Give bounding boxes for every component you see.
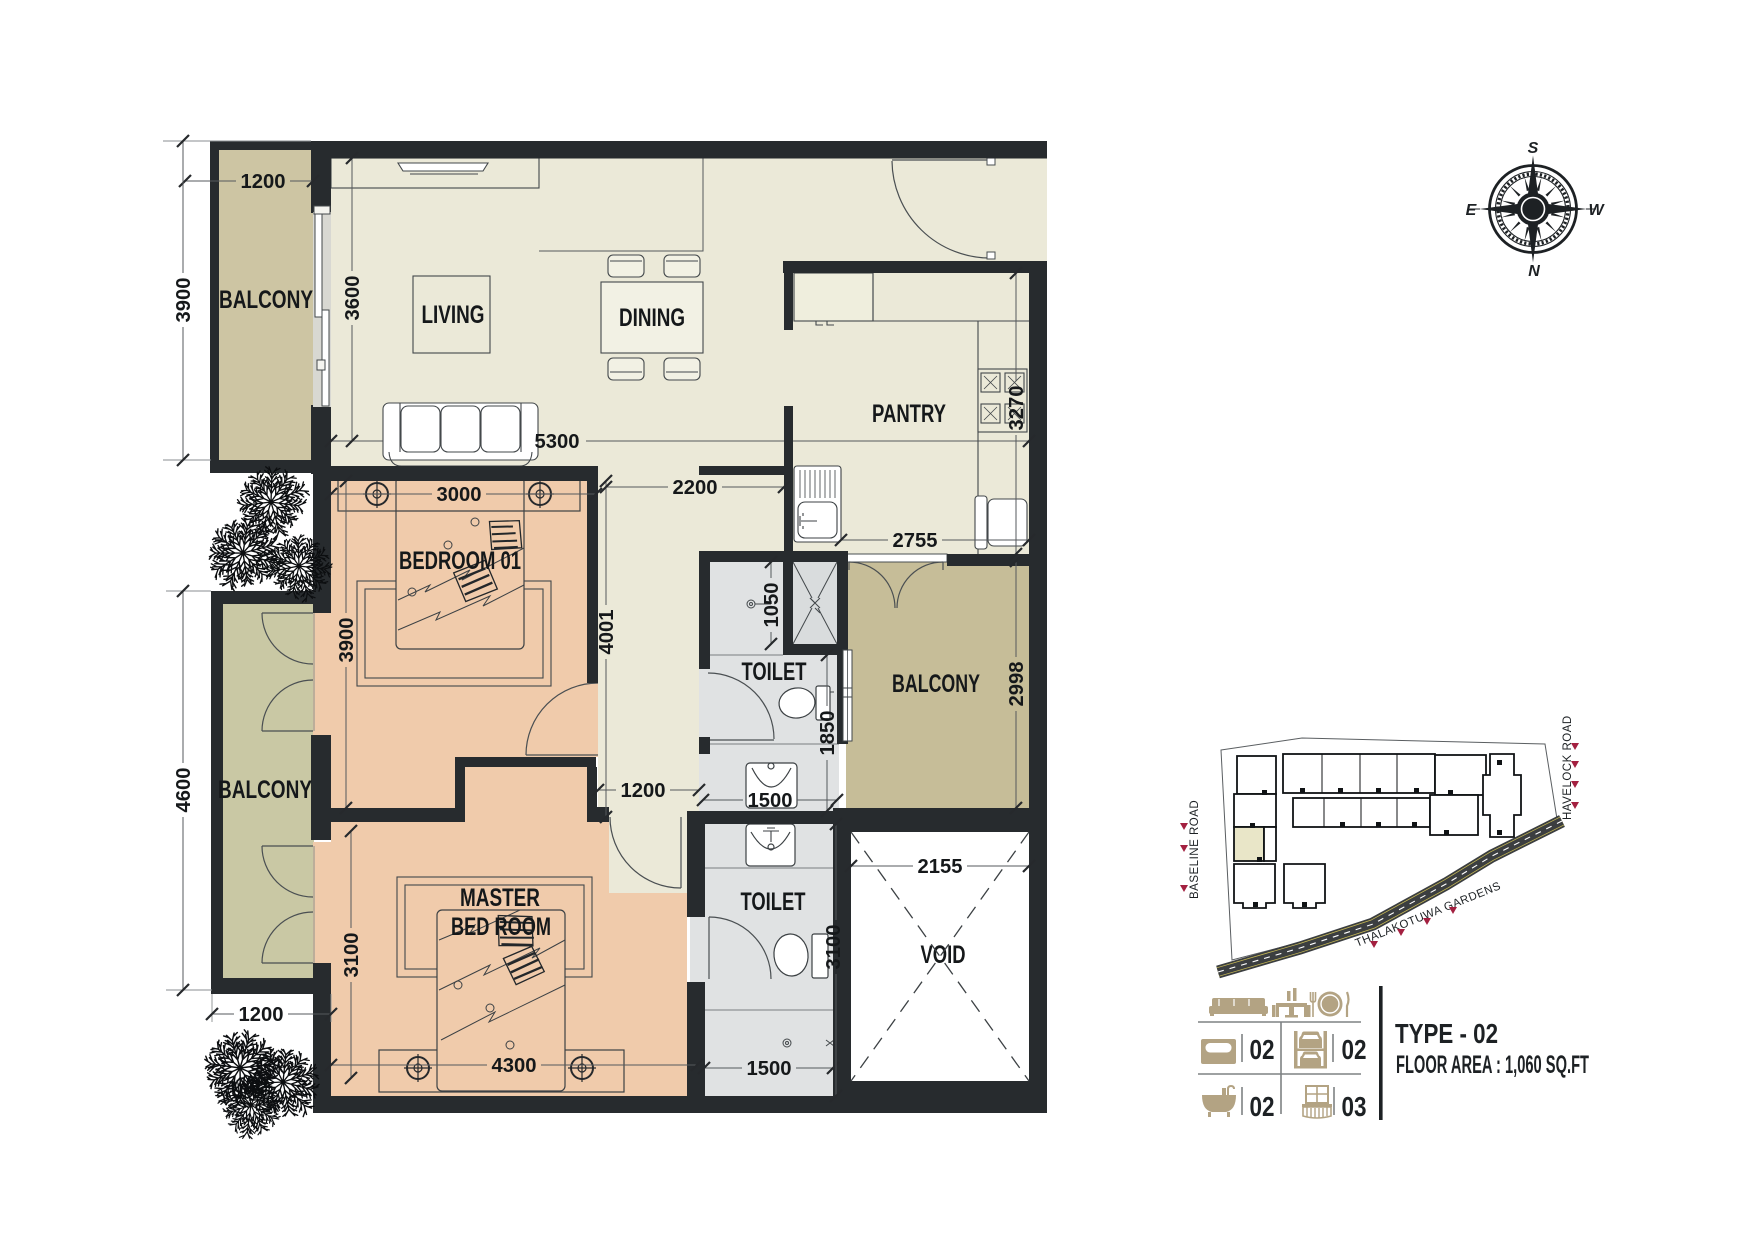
svg-text:MASTER: MASTER [460, 884, 540, 912]
svg-text:2755: 2755 [893, 530, 938, 552]
svg-text:4001: 4001 [596, 610, 618, 655]
svg-text:TYPE - 02: TYPE - 02 [1395, 1018, 1498, 1049]
svg-text:3600: 3600 [342, 276, 364, 321]
svg-text:BALCONY: BALCONY [218, 776, 312, 804]
svg-text:3900: 3900 [336, 618, 358, 663]
svg-text:E: E [1466, 202, 1478, 219]
svg-text:1850: 1850 [817, 711, 839, 756]
svg-text:N: N [1528, 263, 1540, 280]
svg-text:W: W [1588, 202, 1605, 219]
svg-text:3900: 3900 [173, 278, 195, 323]
svg-text:VOID: VOID [921, 941, 966, 969]
svg-text:BEDROOM 01: BEDROOM 01 [399, 547, 521, 575]
svg-text:LIVING: LIVING [422, 301, 485, 329]
svg-text:02: 02 [1250, 1091, 1275, 1122]
svg-text:4600: 4600 [173, 768, 195, 813]
svg-text:3100: 3100 [341, 933, 363, 978]
svg-text:1200: 1200 [239, 1004, 284, 1026]
svg-text:02: 02 [1250, 1034, 1275, 1065]
svg-text:2155: 2155 [918, 856, 963, 878]
svg-text:TOILET: TOILET [742, 658, 807, 686]
svg-text:2200: 2200 [673, 477, 718, 499]
svg-text:BASELINE ROAD: BASELINE ROAD [1189, 800, 1201, 899]
svg-text:1200: 1200 [621, 780, 666, 802]
svg-text:1200: 1200 [241, 171, 286, 193]
svg-text:1500: 1500 [748, 790, 793, 812]
svg-text:FLOOR AREA : 1,060 SQ.FT: FLOOR AREA : 1,060 SQ.FT [1396, 1051, 1589, 1079]
svg-text:1500: 1500 [747, 1058, 792, 1080]
svg-text:S: S [1528, 140, 1539, 157]
svg-text:02: 02 [1342, 1034, 1367, 1065]
svg-text:03: 03 [1342, 1091, 1367, 1122]
svg-text:5300: 5300 [535, 431, 580, 453]
svg-text:BALCONY: BALCONY [892, 670, 980, 698]
svg-text:HAVELOCK ROAD: HAVELOCK ROAD [1562, 715, 1574, 820]
svg-text:DINING: DINING [619, 304, 685, 332]
svg-text:BALCONY: BALCONY [219, 286, 313, 314]
svg-text:BED ROOM: BED ROOM [451, 913, 551, 941]
svg-text:TOILET: TOILET [741, 888, 806, 916]
svg-text:3100: 3100 [823, 925, 845, 970]
svg-text:3000: 3000 [437, 484, 482, 506]
svg-text:2998: 2998 [1006, 662, 1028, 707]
svg-text:3270: 3270 [1006, 386, 1028, 431]
svg-text:4300: 4300 [492, 1055, 537, 1077]
svg-text:1050: 1050 [761, 583, 783, 628]
svg-text:PANTRY: PANTRY [872, 400, 946, 428]
